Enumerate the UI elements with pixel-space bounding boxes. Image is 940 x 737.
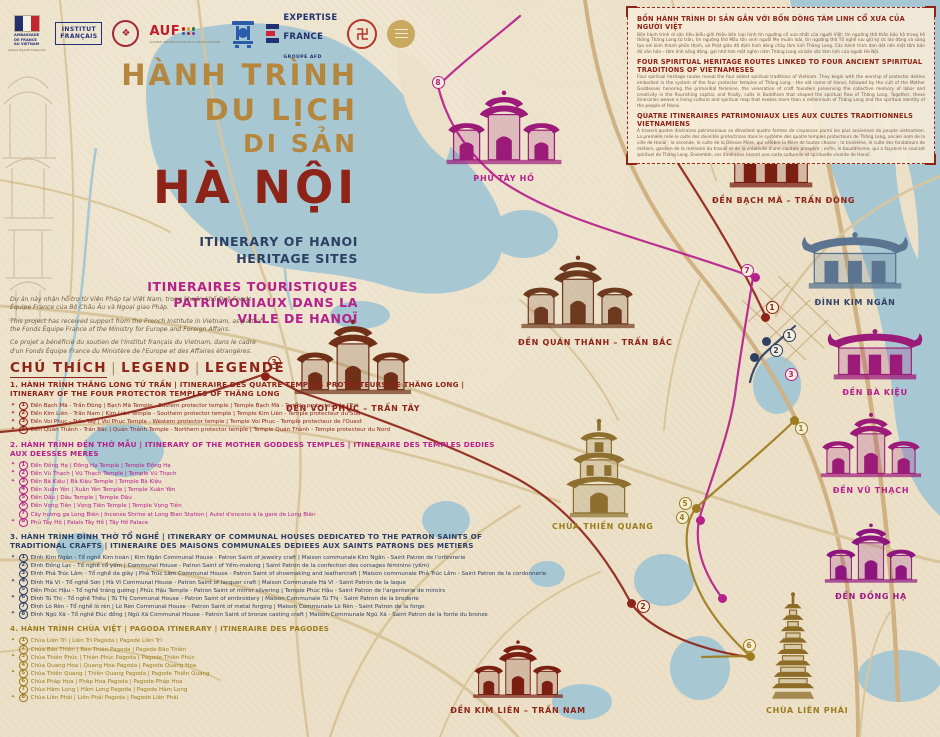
legend-star-bullet: ✦ [10,518,16,525]
subtitle-english: ITINERARY OF HANOI HERITAGE SITES [70,234,358,267]
page-title-line1: HÀNH TRÌNH [70,58,358,93]
info-title-english: FOUR SPIRITUAL HERITAGE ROUTES LINKED TO… [637,58,925,74]
legend-star-bullet: ✦ [10,461,16,468]
credit-vietnamese: Dự án này nhận hỗ trợ từ Viện Pháp tại V… [10,296,268,313]
legend-item: ✦8Phủ Tây Hồ | Palais Tây Hồ | Tây Hồ Pa… [10,518,496,526]
legend: CHÚ THÍCH|LEGEND|LEGENDE 1. HÀNH TRÌNH T… [10,360,496,708]
logo-bar: AMBASSADE DE FRANCE AU VIETNAM Liberté É… [8,5,415,62]
legend-item-number: 1 [19,554,28,563]
credit-english: This project has received support from t… [10,318,268,335]
legend-item: ✦2Đền Vũ Thạch | Vũ Thạch Temple | Templ… [10,469,496,477]
legend-star-bullet: ✦ [10,426,16,433]
legend-item-label: Đình Ngũ Xã - Tổ nghề Đúc đồng | Ngũ Xã … [31,610,488,619]
legend-section-title: 2. HÀNH TRÌNH ĐỀN THỜ MẪU | ITINERARY OF… [10,440,496,458]
legend-item-number: 8 [19,610,28,619]
legend-star-bullet: ✦ [10,669,16,676]
legend-item-number: 1 [19,402,28,411]
legend-item-number: 8 [19,694,28,703]
legend-section-title: 3. HÀNH TRÌNH ĐÌNH THỜ TỔ NGHỀ | ITINERA… [10,532,496,550]
page-title-line3: DI SẢN [70,129,358,160]
legend-item: 6Đền Vọng Tiên | Vọng Tiên Temple | Temp… [10,502,496,510]
legend-item-number: 4 [19,426,28,435]
legend-star-bullet: ✦ [10,410,16,417]
legend-item: ✦8Chùa Liên Phái | Liên Phái Pagoda | Pa… [10,694,496,702]
auf-wordmark: AUF [149,24,180,39]
auf-dots-icon [182,27,196,35]
logo-auf: AUF AGENCE UNIVERSITAIRE DE LA FRANCOPHO… [149,24,220,44]
legend-item: 6Chùa Pháp Hoa | Pháp Hoa Pagoda | Pagod… [10,677,496,685]
legend-star-bullet: ✦ [10,469,16,476]
legend-star-bullet: ✦ [10,637,16,644]
legend-star-bullet: ✦ [10,478,16,485]
ambassade-motto: Liberté Égalité Fraternité [8,48,45,52]
page-title-city: HÀ NỘI [70,165,358,210]
info-box-corner-icon [626,154,637,165]
credit-french: Ce projet a bénéficié du soutien de l'In… [10,339,268,356]
legend-item: 2Chùa Báo Thiên | Báo Thiên Pagoda | Pag… [10,645,496,653]
legend-star-bullet: ✦ [10,418,16,425]
legend-star-bullet: ✦ [10,610,16,617]
legend-star-bullet: ✦ [10,578,16,585]
info-box: BỐN HÀNH TRÌNH DI SẢN GẮN VỚI BỐN DÒNG T… [627,7,935,164]
info-title-vietnamese: BỐN HÀNH TRÌNH DI SẢN GẮN VỚI BỐN DÒNG T… [637,15,925,31]
page-title-line2: DU LỊCH [70,93,358,128]
legend-item: 5Đền Dâu | Dâu Temple | Temple Dâu [10,494,496,502]
logo-ambassade-france: AMBASSADE DE FRANCE AU VIETNAM Liberté É… [8,15,45,51]
legend-item-number: 2 [19,410,28,419]
legend-item-number: 3 [19,418,28,427]
info-box-corner-icon [925,154,936,165]
legend-item: 7Đình Lò Rèn - Tổ nghề lò rèn | Lò Rèn C… [10,602,496,610]
legend-item: 3Đình Phả Trúc Lâm - Tổ nghề da giày | P… [10,570,496,578]
legend-item-label: Đền Quán Thánh - Trấn Bắc | Quán Thánh T… [31,426,390,435]
left-architecture-sketch [2,77,56,320]
red-seal-icon: ❖ [112,20,139,47]
legend-item-label: Phủ Tây Hồ | Palais Tây Hồ | Tây Hồ Pala… [31,518,148,527]
legend-heading: CHÚ THÍCH|LEGEND|LEGENDE [10,360,496,376]
legend-item: ✦3Đền Voi Phục - Trấn Tây | Voi Phục Tem… [10,418,496,426]
credits-block: Dự án này nhận hỗ trợ từ Viện Pháp tại V… [10,296,268,361]
legend-item: ✦3Chùa Thiên Phúc | Thiên Phúc Pagoda | … [10,653,496,661]
legend-section-title: 1. HÀNH TRÌNH THĂNG LONG TỨ TRẤN | ITINE… [10,380,496,398]
legend-section-2: 2. HÀNH TRÌNH ĐỀN THỜ MẪU | ITINERARY OF… [10,440,496,526]
legend-item-number: 2 [19,469,28,478]
expertise-france-e-icon [266,24,279,43]
legend-item-number: 4 [19,486,28,495]
heritage-map-poster: PHỦ TÂY HỒĐỀN BẠCH MÃ – TRẤN ĐÔNGĐÌNH KI… [0,0,940,737]
legend-item: 5Đền Phúc Hậu - Tổ nghề tráng gương | Ph… [10,586,496,594]
red-temple-seal-icon: 卍 [347,19,377,49]
legend-item: ✦3Đền Bà Kiệu | Bà Kiệu Temple | Temple … [10,478,496,486]
legend-section-4: 4. HÀNH TRÌNH CHÙA VIỆT | PAGODA ITINERA… [10,624,496,701]
info-title-french: QUATRE ITINERAIRES PATRIMONIAUX LIES AUX… [637,112,925,128]
legend-section-1: 1. HÀNH TRÌNH THĂNG LONG TỨ TRẤN | ITINE… [10,380,496,434]
legend-item: ✦1Đền Đồng Hạ | Đồng Hạ Temple | Temple … [10,461,496,469]
legend-item: ✦5Chùa Thiền Quang | Thiền Quang Pagoda … [10,669,496,677]
legend-item: ✦8Đình Ngũ Xã - Tổ nghề Đúc đồng | Ngũ X… [10,610,496,618]
info-box-corner-icon [626,6,637,17]
legend-item: 7Chùa Hàm Long | Hàm Long Pagoda | Pagod… [10,685,496,693]
logo-expertise-france: EXPERTISE FRANCE GROUPE AFD [266,5,337,62]
auf-subtitle: AGENCE UNIVERSITAIRE DE LA FRANCOPHONIE [149,40,220,44]
info-box-corner-icon [925,6,936,17]
legend-item: 4Chùa Quang Hoa | Quang Hoa Pagoda | Pag… [10,661,496,669]
legend-item: ✦4Đền Quán Thánh - Trấn Bắc | Quán Thánh… [10,426,496,434]
legend-item: ✦6Đình Tú Thị - Tổ nghề Thêu | Tú Thị Co… [10,594,496,602]
legend-item: ✦1Đình Kim Ngân - Tổ nghề Kim hoàn | Kim… [10,554,496,562]
info-body-english: Four spiritual heritage routes reveal th… [637,75,925,110]
info-body-french: À travers quatre itinéraires patrimoniau… [637,129,925,158]
legend-item: 2Đình Đồng Lạc - Tổ nghề cổ yếm | Commun… [10,562,496,570]
legend-item: ✦4Đình Hà Vĩ - Tổ nghề Sơn | Hà Vĩ Commu… [10,578,496,586]
legend-star-bullet: ✦ [10,653,16,660]
legend-item: 4Đền Xuân Yên | Xuân Yên Temple | Temple… [10,486,496,494]
legend-item-number: 3 [19,478,28,487]
legend-star-bullet: ✦ [10,594,16,601]
info-body-vietnamese: Bốn hành trình di sản tiêu biểu giới thi… [637,33,925,56]
legend-section-3: 3. HÀNH TRÌNH ĐÌNH THỜ TỔ NGHỀ | ITINERA… [10,532,496,618]
legend-sections: 1. HÀNH TRÌNH THĂNG LONG TỨ TRẤN | ITINE… [10,380,496,702]
legend-star-bullet: ✦ [10,402,16,409]
legend-section-title: 4. HÀNH TRÌNH CHÙA VIỆT | PAGODA ITINERA… [10,624,496,633]
legend-item: ✦1Đền Bạch Mã - Trấn Đông | Bạch Mã Temp… [10,402,496,410]
title-block: HÀNH TRÌNH DU LỊCH DI SẢN HÀ NỘI ITINERA… [70,58,358,328]
blue-emblem-icon [230,19,256,49]
french-flag-icon [14,15,40,32]
legend-star-bullet: ✦ [10,554,16,561]
legend-star-bullet: ✦ [10,694,16,701]
gold-seal-icon [387,20,415,48]
ambassade-caption: AMBASSADE [14,33,39,37]
legend-item: ✦1Chùa Liên Trì | Liên Trì Pagoda | Pago… [10,637,496,645]
legend-item-number: 7 [19,685,28,694]
legend-item-number: 8 [19,518,28,527]
legend-item: 7Cây hương ga Long Biên | Incense Shrine… [10,510,496,518]
legend-item-label: Chùa Liên Phái | Liên Phái Pagoda | Pago… [31,694,179,703]
legend-item: ✦2Đền Kim Liên - Trấn Nam | Kim Liên Tem… [10,410,496,418]
logo-institut-francais: INSTITUT FRANÇAIS [55,22,102,45]
